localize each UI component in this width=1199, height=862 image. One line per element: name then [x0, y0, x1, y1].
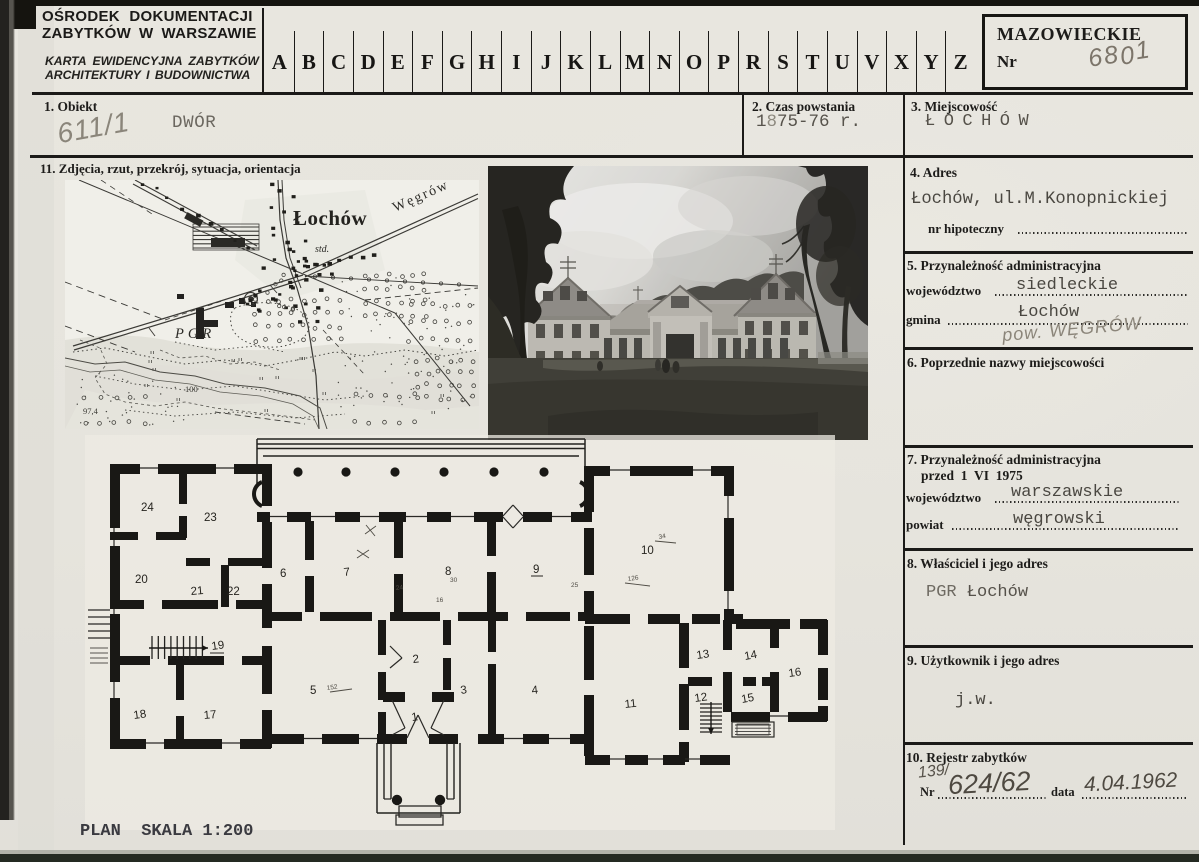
svg-text:100: 100: [185, 384, 198, 394]
svg-text:9: 9: [533, 564, 539, 576]
svg-text:11: 11: [624, 698, 637, 711]
svg-text:19: 19: [211, 639, 225, 653]
svg-text:2: 2: [412, 653, 420, 666]
svg-text:17: 17: [203, 709, 217, 722]
svg-text:25: 25: [571, 582, 579, 589]
svg-text:21: 21: [190, 585, 204, 598]
svg-text:13: 13: [696, 648, 710, 662]
svg-text:30: 30: [450, 577, 458, 584]
svg-text:10: 10: [641, 545, 654, 557]
svg-text:23: 23: [204, 512, 217, 524]
svg-text:16: 16: [788, 666, 802, 680]
svg-text:std.: std.: [315, 244, 329, 255]
svg-text:97,4: 97,4: [83, 406, 99, 416]
svg-text:24: 24: [141, 502, 154, 514]
svg-text:12: 12: [694, 691, 708, 705]
svg-text:18: 18: [133, 708, 147, 722]
svg-text:PGR: PGR: [174, 326, 215, 342]
svg-text:15: 15: [740, 692, 755, 706]
svg-text:5: 5: [310, 685, 316, 697]
svg-text:16: 16: [436, 597, 444, 604]
svg-text:22: 22: [227, 586, 240, 598]
svg-text:7: 7: [343, 566, 351, 579]
svg-text:Łochów: Łochów: [293, 206, 368, 230]
svg-text:24: 24: [395, 584, 403, 592]
svg-text:6: 6: [280, 568, 286, 580]
svg-text:20: 20: [135, 574, 148, 586]
